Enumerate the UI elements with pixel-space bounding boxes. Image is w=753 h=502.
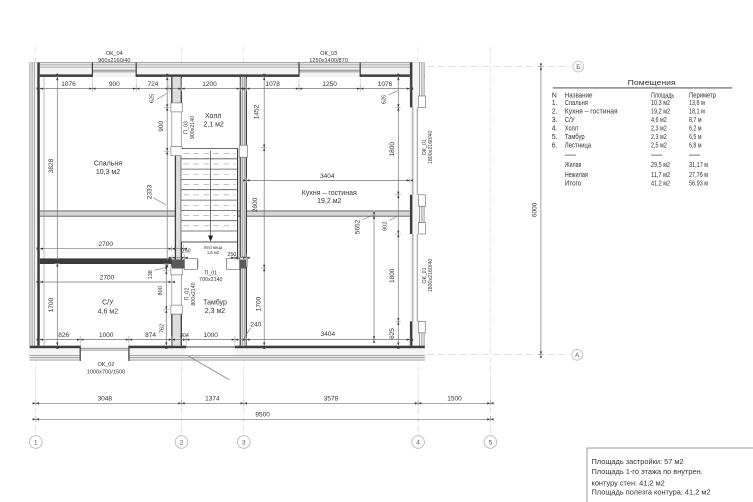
svg-text:802: 802: [383, 222, 389, 231]
svg-text:Нежилая: Нежилая: [565, 172, 588, 179]
svg-text:3.: 3.: [552, 117, 558, 124]
svg-text:3404: 3404: [321, 331, 336, 338]
svg-text:контуру стен: 41,2 м2: контуру стен: 41,2 м2: [592, 479, 665, 488]
svg-text:900: 900: [158, 120, 165, 131]
svg-text:2700: 2700: [100, 274, 115, 281]
svg-text:Помещения: Помещения: [628, 78, 676, 87]
svg-text:27,76 м: 27,76 м: [689, 172, 708, 179]
svg-text:762: 762: [160, 324, 166, 333]
svg-text:1: 1: [34, 439, 38, 446]
svg-text:138: 138: [148, 270, 154, 279]
svg-text:1000х700/1500: 1000х700/1500: [87, 369, 126, 375]
svg-text:625: 625: [382, 95, 388, 104]
svg-text:2,3 м2: 2,3 м2: [205, 308, 225, 315]
svg-text:1700: 1700: [48, 297, 55, 312]
svg-text:3404: 3404: [320, 173, 335, 180]
svg-text:4,6 м2: 4,6 м2: [651, 117, 667, 124]
svg-text:П_01: П_01: [204, 270, 217, 276]
svg-text:2,3 м2: 2,3 м2: [651, 126, 667, 133]
svg-text:3048: 3048: [98, 396, 113, 403]
svg-text:304: 304: [180, 333, 189, 339]
svg-text:Площадь полезга контура: 41,2: Площадь полезга контура: 41,2 м2: [592, 488, 711, 497]
svg-text:1000: 1000: [99, 332, 114, 339]
svg-text:6,2 м: 6,2 м: [689, 126, 702, 133]
svg-text:31,17 м: 31,17 м: [689, 162, 708, 169]
svg-text:Спальня: Спальня: [565, 100, 588, 107]
svg-text:18,1 м: 18,1 м: [689, 109, 705, 116]
svg-text:3578: 3578: [324, 396, 339, 403]
svg-text:Кухня – гостиная: Кухня – гостиная: [302, 190, 357, 197]
svg-text:4.: 4.: [552, 126, 558, 133]
svg-text:10,3 м2: 10,3 м2: [96, 169, 120, 176]
svg-text:Периметр: Периметр: [689, 92, 716, 99]
svg-text:ОК_03: ОК_03: [320, 51, 337, 57]
svg-text:С/У: С/У: [565, 117, 575, 124]
svg-text:1,6 м2: 1,6 м2: [207, 250, 220, 255]
svg-text:700х2140: 700х2140: [199, 277, 222, 283]
svg-text:3828: 3828: [48, 158, 55, 173]
svg-text:29,5 м2: 29,5 м2: [651, 162, 670, 169]
svg-text:4,6 м2: 4,6 м2: [98, 308, 118, 315]
svg-text:Кухня – гостиная: Кухня – гостиная: [565, 109, 618, 116]
svg-text:П_03: П_03: [184, 121, 190, 134]
svg-text:1452: 1452: [254, 104, 261, 119]
svg-text:874: 874: [145, 332, 156, 339]
svg-text:10,3 м2: 10,3 м2: [651, 100, 670, 107]
svg-text:19,2 м2: 19,2 м2: [651, 109, 670, 116]
svg-text:2,3 м2: 2,3 м2: [651, 134, 667, 141]
svg-text:2.: 2.: [552, 109, 558, 116]
svg-text:Тамбур: Тамбур: [203, 298, 227, 306]
svg-text:2700: 2700: [99, 241, 114, 248]
svg-text:1250х1400/870: 1250х1400/870: [309, 58, 348, 64]
svg-text:Холл: Холл: [565, 126, 578, 133]
svg-text:П_02: П_02: [185, 288, 191, 301]
svg-text:4: 4: [416, 439, 420, 446]
svg-text:6,5 м: 6,5 м: [689, 134, 702, 141]
svg-text:1500: 1500: [447, 396, 462, 403]
svg-text:41,2 м2: 41,2 м2: [651, 181, 670, 188]
svg-text:3: 3: [242, 439, 246, 446]
svg-text:9500: 9500: [255, 412, 270, 419]
svg-text:625: 625: [150, 94, 156, 103]
svg-text:1076: 1076: [61, 81, 76, 88]
svg-text:Площадь 1-го этажа по внутрен.: Площадь 1-го этажа по внутрен.: [592, 467, 703, 476]
svg-text:900: 900: [109, 81, 120, 88]
svg-text:1700: 1700: [255, 296, 262, 311]
svg-text:1800: 1800: [389, 142, 396, 157]
svg-text:800: 800: [158, 286, 164, 295]
svg-text:8,7 м: 8,7 м: [689, 117, 702, 124]
svg-text:1200: 1200: [202, 81, 217, 88]
svg-text:1.: 1.: [552, 100, 558, 107]
svg-text:Площадь: Площадь: [651, 92, 674, 99]
svg-text:Б: Б: [576, 64, 580, 71]
svg-text:Название: Название: [565, 92, 593, 99]
svg-text:250: 250: [182, 248, 191, 254]
svg-text:1078: 1078: [265, 81, 280, 88]
svg-text:6.: 6.: [552, 143, 558, 150]
svg-text:2600: 2600: [252, 197, 259, 212]
svg-text:5652: 5652: [355, 219, 362, 234]
svg-text:N: N: [552, 92, 557, 99]
svg-text:1374: 1374: [205, 396, 220, 403]
svg-text:5: 5: [489, 439, 493, 446]
svg-text:1800х2160/40: 1800х2160/40: [428, 130, 434, 164]
svg-text:2,1 м2: 2,1 м2: [203, 121, 223, 128]
svg-text:Лестница: Лестница: [565, 143, 591, 150]
svg-text:2: 2: [180, 439, 184, 446]
svg-text:1800: 1800: [389, 268, 396, 283]
svg-text:1000: 1000: [203, 332, 218, 339]
svg-text:625: 625: [389, 328, 396, 339]
svg-text:900х2140: 900х2140: [190, 116, 196, 139]
svg-text:1800х2160/40: 1800х2160/40: [428, 259, 434, 293]
svg-text:Тамбур: Тамбур: [565, 133, 585, 141]
svg-text:5.: 5.: [552, 134, 558, 141]
svg-text:Итого: Итого: [565, 181, 582, 188]
svg-text:56,93 м: 56,93 м: [689, 181, 708, 188]
svg-text:Холл: Холл: [205, 113, 222, 120]
svg-text:1076: 1076: [378, 81, 393, 88]
svg-text:С/У: С/У: [102, 300, 114, 307]
svg-text:1250: 1250: [322, 81, 337, 88]
svg-text:19,2 м2: 19,2 м2: [317, 198, 341, 205]
svg-text:Площадь застройки: 57 м2: Площадь застройки: 57 м2: [592, 457, 684, 466]
svg-text:826: 826: [58, 332, 69, 339]
svg-text:ОК_04: ОК_04: [106, 51, 123, 57]
svg-text:6,8 м: 6,8 м: [689, 143, 702, 150]
svg-text:Жилая: Жилая: [565, 162, 582, 169]
svg-text:Спальня: Спальня: [94, 161, 122, 168]
svg-text:900х2160/40: 900х2160/40: [98, 58, 130, 64]
svg-text:800х2140: 800х2140: [191, 282, 197, 305]
svg-text:250: 250: [227, 252, 236, 258]
svg-text:13,6 м: 13,6 м: [689, 100, 705, 107]
svg-text:724: 724: [148, 81, 159, 88]
svg-text:2333: 2333: [147, 184, 154, 199]
svg-text:ОК_02: ОК_02: [98, 362, 115, 368]
svg-text:2,5 м2: 2,5 м2: [651, 143, 667, 150]
svg-text:6000: 6000: [531, 202, 538, 217]
svg-text:240: 240: [250, 322, 261, 329]
svg-text:11,7 м2: 11,7 м2: [651, 172, 670, 179]
